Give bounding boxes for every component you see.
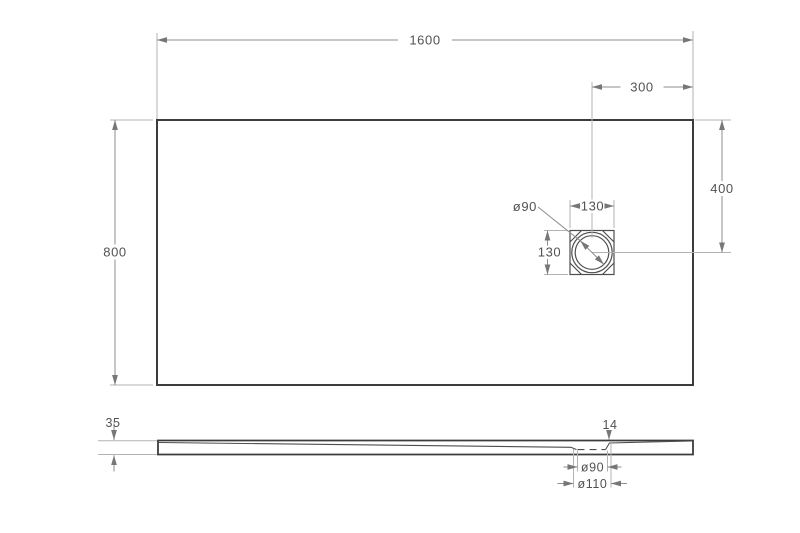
technical-drawing-page: 1600 300 400 130 130 800 ø90 35 14 ø90 ø… xyxy=(0,0,800,533)
label-drain-offset-top: 400 xyxy=(710,181,734,196)
label-drain-height: 130 xyxy=(538,245,562,260)
label-overall-depth: 800 xyxy=(103,245,127,260)
label-overall-width: 1600 xyxy=(409,33,440,48)
label-hole-diameter: ø90 xyxy=(581,461,604,475)
label-drain-offset-right: 300 xyxy=(630,80,654,95)
label-drain-width: 130 xyxy=(581,199,605,214)
extension-lines-thickness xyxy=(98,441,157,455)
label-drain-zone-thickness: 14 xyxy=(602,418,617,432)
side-view: 35 14 ø90 ø110 xyxy=(98,416,693,491)
label-drain-diameter: ø90 xyxy=(513,199,537,214)
label-edge-thickness: 35 xyxy=(105,416,120,430)
label-recess-diameter: ø110 xyxy=(578,477,608,491)
top-view: 1600 300 400 130 130 800 ø90 xyxy=(99,31,743,385)
shower-tray-drawing: 1600 300 400 130 130 800 ø90 35 14 ø90 ø… xyxy=(0,0,800,533)
